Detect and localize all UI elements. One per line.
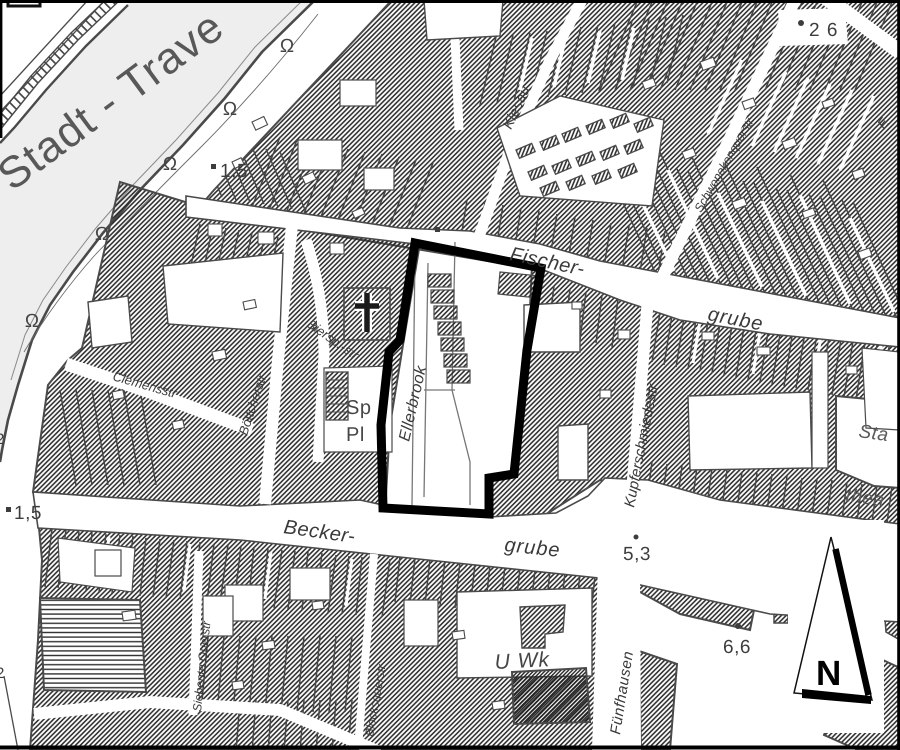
svg-text:U Wk: U Wk	[494, 648, 551, 674]
svg-text:N: N	[816, 654, 841, 693]
svg-text:1,5: 1,5	[220, 161, 248, 182]
svg-text:Ω: Ω	[25, 311, 39, 332]
svg-text:Ω: Ω	[280, 36, 294, 57]
svg-text:Ω: Ω	[163, 154, 177, 175]
svg-text:6,6: 6,6	[723, 637, 751, 658]
svg-text:5,3: 5,3	[623, 544, 651, 565]
svg-text:2 6: 2 6	[809, 20, 838, 41]
svg-text:2: 2	[0, 665, 4, 682]
svg-text:Sta: Sta	[857, 421, 890, 446]
svg-text:2: 2	[0, 431, 4, 448]
svg-text:Ω: Ω	[223, 99, 237, 120]
svg-text:Sp: Sp	[346, 397, 371, 419]
svg-text:Pl: Pl	[346, 424, 365, 446]
svg-text:1,5: 1,5	[14, 503, 42, 524]
